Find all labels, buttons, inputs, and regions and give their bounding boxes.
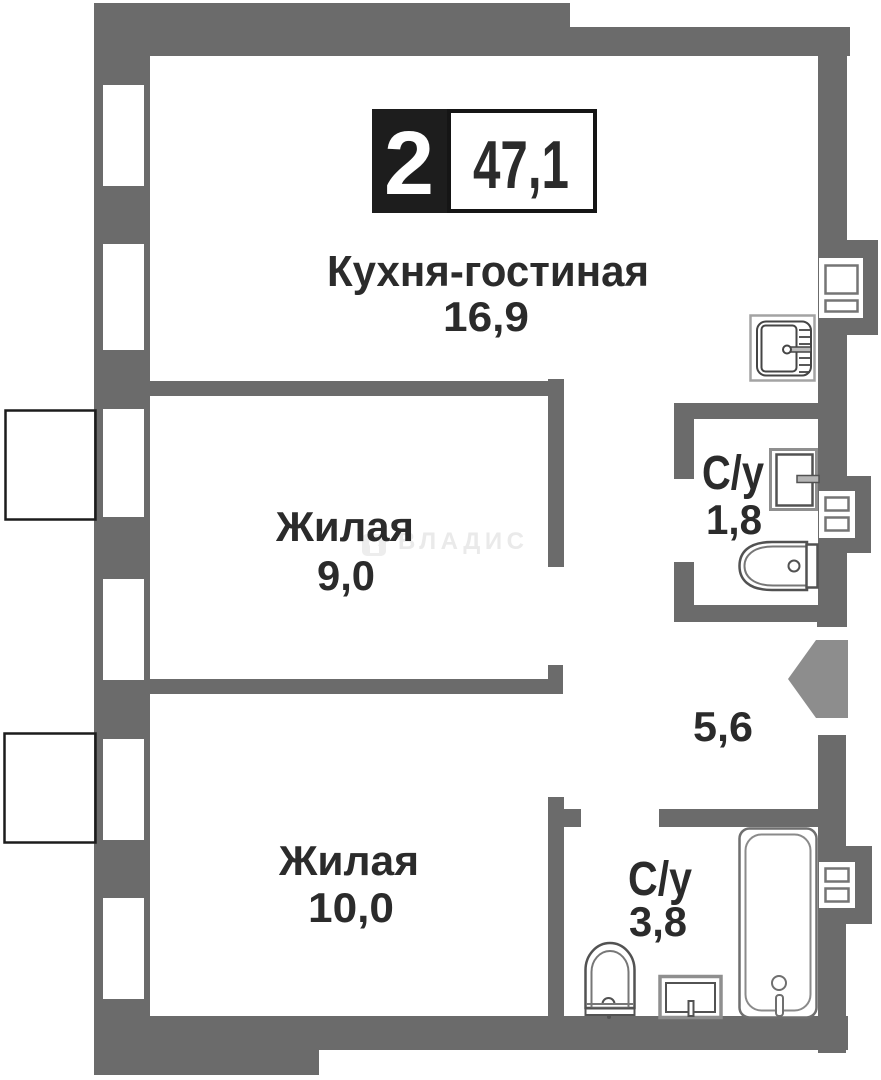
svg-text:Жилая: Жилая [275, 503, 414, 550]
svg-text:1,8: 1,8 [706, 496, 762, 543]
svg-text:5,6: 5,6 [693, 703, 753, 750]
svg-text:Кухня-гостиная: Кухня-гостиная [327, 247, 649, 296]
svg-text:С/у: С/у [702, 447, 764, 500]
svg-text:16,9: 16,9 [443, 293, 529, 340]
svg-text:9,0: 9,0 [317, 552, 375, 599]
svg-text:ВЛАДИС: ВЛАДИС [398, 528, 528, 555]
svg-text:47,1: 47,1 [473, 127, 569, 203]
svg-text:2: 2 [384, 114, 434, 214]
svg-text:3,8: 3,8 [629, 898, 687, 945]
svg-text:Жилая: Жилая [278, 837, 419, 884]
svg-text:10,0: 10,0 [308, 884, 394, 931]
